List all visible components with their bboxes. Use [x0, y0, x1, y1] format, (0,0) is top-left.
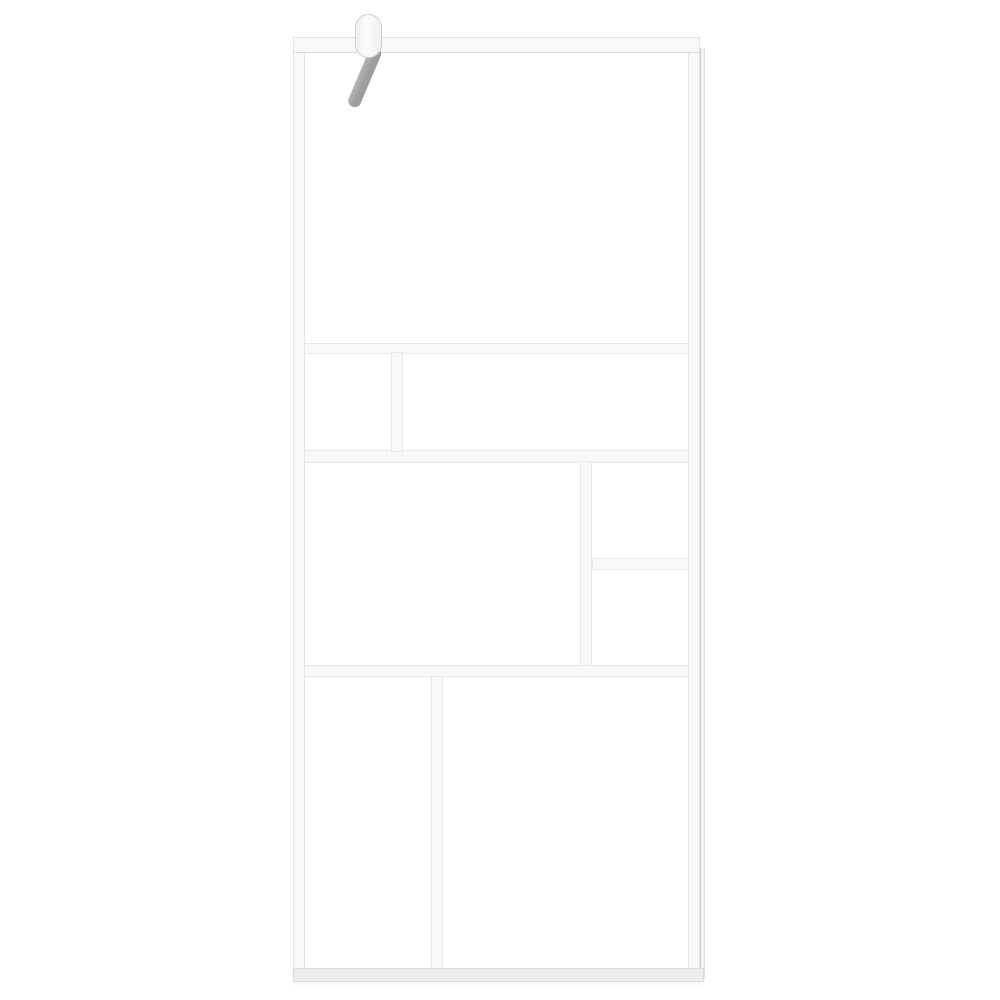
grid-bar-vertical-row2	[391, 352, 403, 452]
glass-panel-row3-left	[305, 463, 580, 665]
glass-panel-row4-left	[305, 677, 431, 968]
frame-right-stile	[688, 37, 700, 982]
glass-panel-row4-right	[443, 677, 688, 968]
frame-bottom-rail	[293, 968, 704, 982]
grid-bar-horizontal-lower	[304, 665, 689, 677]
glass-panel-row3-right-top	[592, 463, 688, 558]
grid-bar-horizontal-middle	[304, 450, 689, 463]
grid-bar-horizontal-sub-right	[592, 558, 689, 570]
grid-bar-vertical-row3	[580, 461, 592, 666]
grid-bar-vertical-row4	[431, 676, 443, 969]
wall-mount-profile	[700, 48, 705, 978]
glass-panel-row2-left	[305, 354, 391, 450]
grid-bar-horizontal-upper	[304, 343, 689, 354]
product-photo-stage	[0, 0, 1000, 1000]
glass-panel-row2-right	[403, 354, 688, 450]
glass-panel-row3-right-bottom	[592, 570, 688, 665]
frame-left-stile	[293, 37, 305, 982]
support-arm-clamp	[355, 14, 382, 58]
